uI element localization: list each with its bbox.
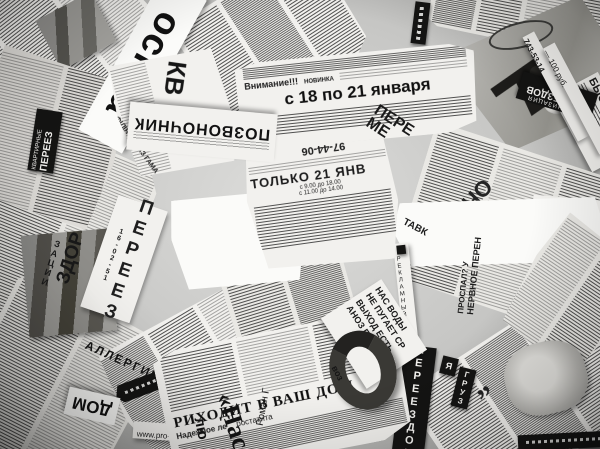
newsprint-column [236, 326, 319, 396]
reversed-type-dashes [526, 437, 600, 444]
newsprint-column [432, 0, 481, 29]
www-text: www.pro- [136, 429, 170, 440]
kv-text: КВ [157, 59, 193, 98]
ya-text: Я [445, 360, 454, 371]
newspaper-collage-photo: осква КВ ФІЛІЯ АЛМАЗ ГАМА БЫСТР ГРУ ОРГА [0, 0, 600, 449]
dom-text: ДОМ [71, 392, 114, 420]
reversed-type-dashes [416, 6, 424, 40]
black-label-strip [410, 1, 430, 45]
masthead-square [396, 245, 406, 255]
